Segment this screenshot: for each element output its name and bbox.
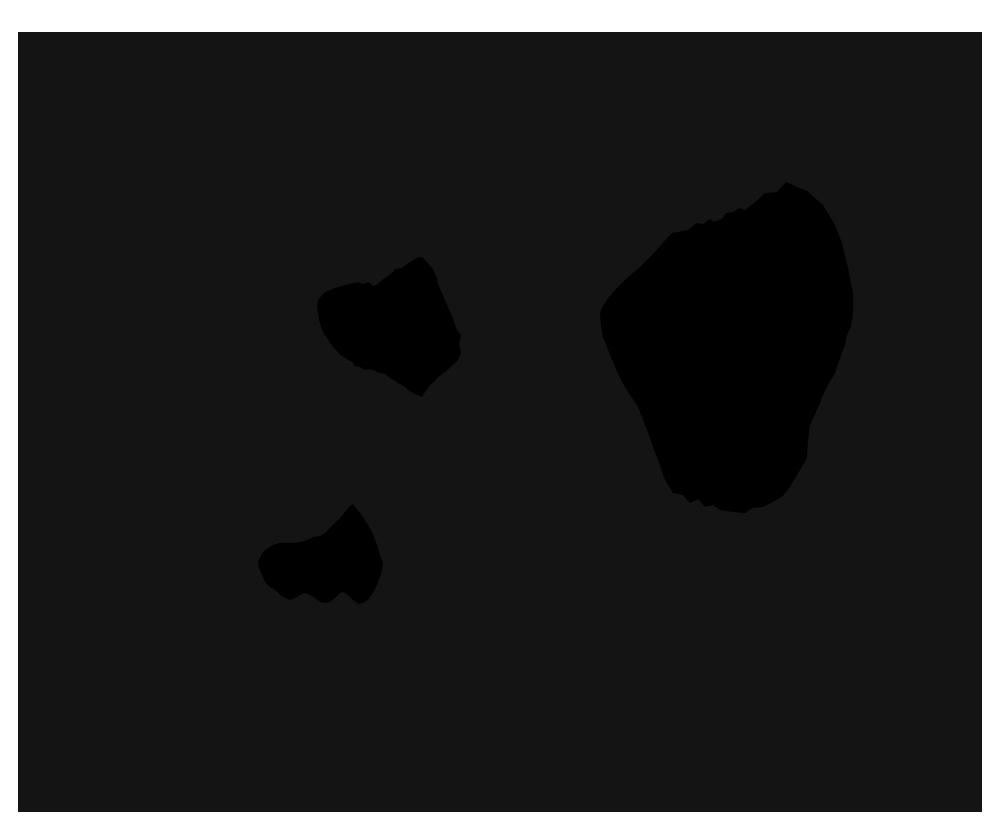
- figure-canvas: [0, 0, 1000, 836]
- dark-image: [18, 32, 982, 812]
- blob-medium-upper-middle: [317, 257, 461, 397]
- blob-large-right: [600, 182, 853, 513]
- silhouette-svg: [18, 32, 982, 812]
- blob-small-lower-left: [258, 504, 383, 604]
